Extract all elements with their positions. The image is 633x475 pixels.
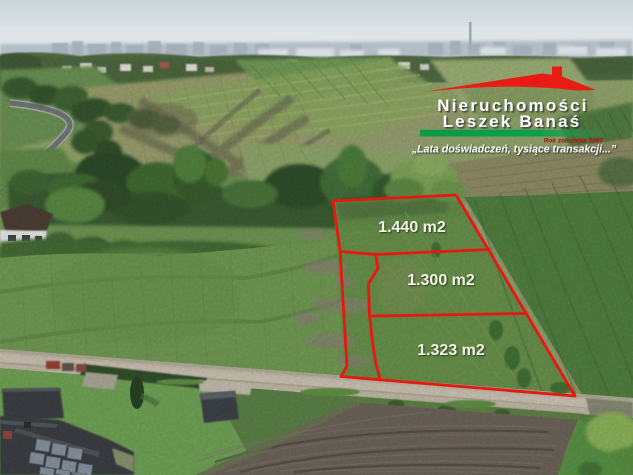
svg-text:1.323 m2: 1.323 m2	[417, 342, 485, 359]
svg-text:„Lata doświadczeń, tysiące tra: „Lata doświadczeń, tysiące transakcji...…	[411, 144, 617, 156]
svg-text:Leszek Banaś: Leszek Banaś	[443, 112, 582, 131]
svg-text:1.300 m2: 1.300 m2	[407, 272, 475, 289]
svg-text:1.440 m2: 1.440 m2	[378, 219, 446, 236]
